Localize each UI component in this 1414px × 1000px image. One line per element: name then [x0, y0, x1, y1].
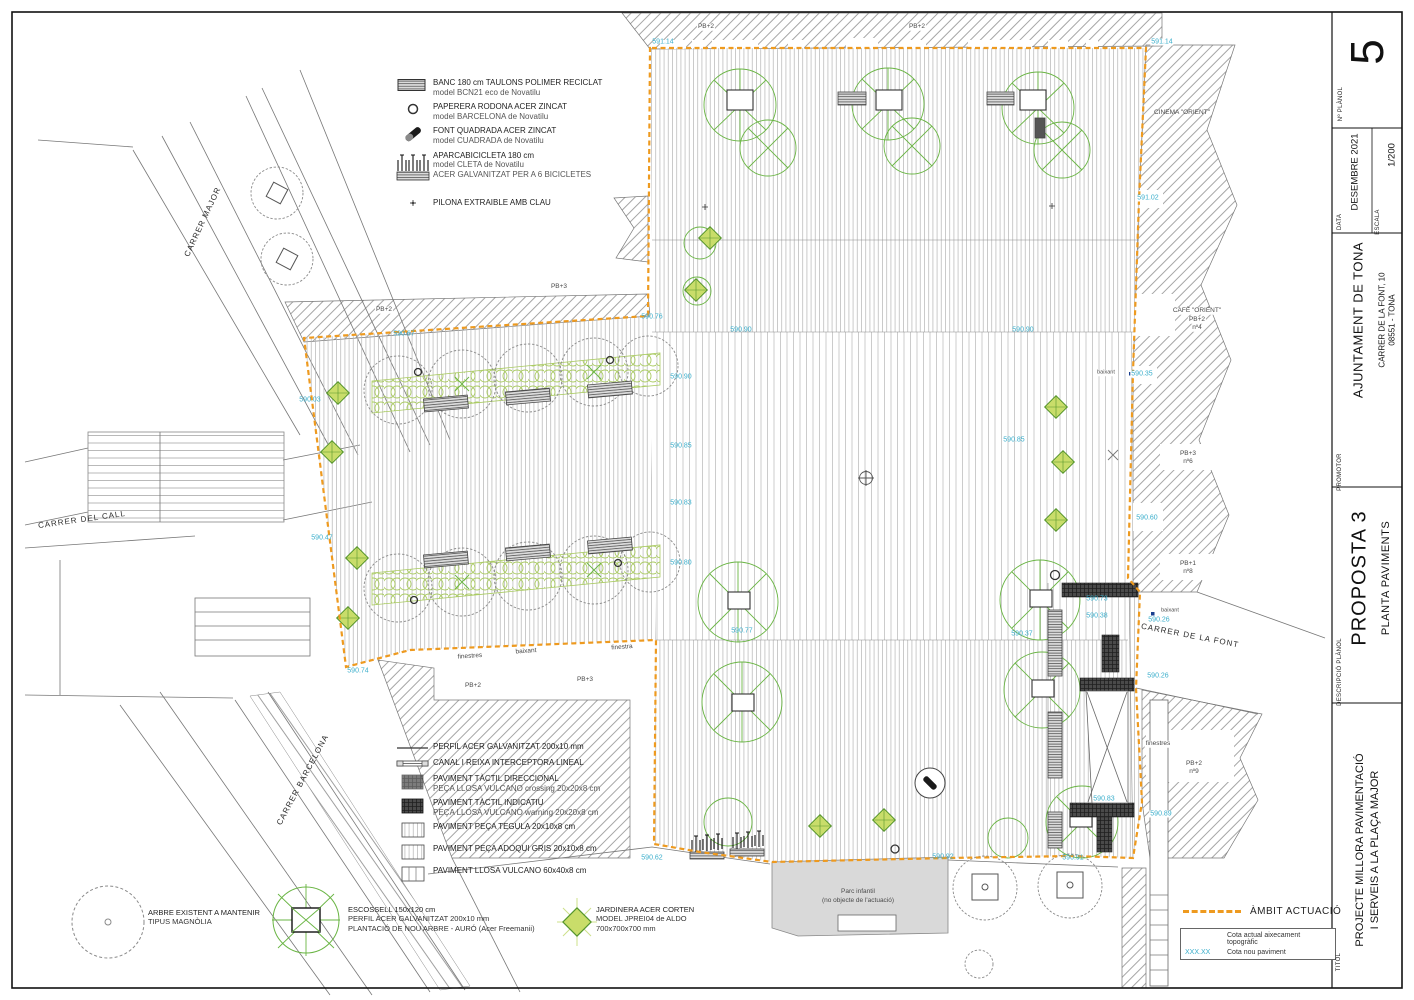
elevation-value: 590.90	[1012, 327, 1033, 334]
legend-item-banc: BANC 180 cm TAULONS POLIMER RECICLAT mod…	[393, 78, 633, 97]
promotor-value: AJUNTAMENT DE TONA	[1351, 242, 1366, 398]
elevation-value: 590.62	[641, 855, 662, 862]
ambit-label: ÀMBIT ACTUACIÓ	[1250, 906, 1341, 917]
elevation-value: 590.92	[932, 854, 953, 861]
legend-item-llosa: PAVIMENT LLOSA VULCANO 60x40x8 cm	[393, 866, 643, 883]
elevation-value: 590.60	[1135, 515, 1158, 522]
titol-label: TITOL	[1336, 953, 1342, 971]
elevation-value: 590.80	[670, 560, 691, 567]
legend-item-font: FONT QUADRADA ACER ZINCAT model CUADRADA…	[393, 126, 633, 145]
elevation-labels: 591.14591.14591.02590.90590.90590.90590.…	[0, 0, 1414, 1000]
legend-item-paperera: PAPERERA RODONA ACER ZINCAT model BARCEL…	[393, 102, 633, 121]
elevation-value: 590.47	[311, 535, 332, 542]
escala-value: 1/200	[1387, 143, 1398, 167]
legend-escossell-text: ESCOSSELL 150x120 cm PERFIL ACER GALVANI…	[348, 905, 535, 933]
titol-line2: I SERVEIS A LA PLAÇA MAJOR	[1368, 753, 1383, 946]
legend-mobiliari: BANC 180 cm TAULONS POLIMER RECICLAT mod…	[393, 78, 633, 213]
escala-label: ESCALA	[1375, 209, 1381, 234]
elevation-value: 590.91	[1062, 855, 1083, 862]
elevation-value: 591.02	[1136, 195, 1159, 202]
elevation-value: 590.85	[670, 443, 691, 450]
elevation-value: 590.89	[1149, 811, 1172, 818]
escossell-icon	[266, 882, 346, 962]
cota-nou-label: Cota nou paviment	[1227, 949, 1331, 956]
legend-escossell-icon	[266, 882, 346, 962]
sheet-number: 5	[1340, 39, 1394, 65]
promotor-address-line2: 08551 - TONA	[1388, 272, 1398, 367]
titol-line1: PROJECTE MILLORA PAVIMENTACIÓ	[1353, 753, 1368, 946]
paperera-icon	[393, 102, 433, 116]
elevation-value: 590.77	[731, 628, 752, 635]
elevation-value: 590.67	[393, 331, 414, 338]
perfil-icon	[393, 742, 433, 753]
elevation-value: 590.03	[299, 397, 320, 404]
cota-actual-label: Cota actual aixecament topogràfic	[1227, 932, 1331, 946]
legend-item-pilona: PILONA EXTRAIBLE AMB CLAU	[393, 198, 633, 208]
promotor-label: PROMOTOR	[1337, 453, 1343, 491]
drawing-sheet: CARRER MAJORCARRER DEL CALLCARRER BARCEL…	[0, 0, 1414, 1000]
elevation-value: 590.35	[1130, 371, 1153, 378]
elevation-value: 590.73	[1086, 596, 1107, 603]
banc-icon	[393, 78, 433, 93]
elevation-value: 590.83	[670, 500, 691, 507]
elevation-value: 590.37	[1011, 631, 1032, 638]
cota-nou-value: XXX.XX	[1185, 949, 1227, 956]
elevation-value: 590.38	[1086, 613, 1107, 620]
canal-icon	[393, 758, 433, 769]
elevation-value: 590.76	[641, 314, 662, 321]
ambit-dash-icon	[1183, 910, 1241, 913]
llosa-icon	[393, 866, 433, 883]
descripcio-value-1: PROPOSTA 3	[1349, 510, 1372, 645]
promotor-address: CARRER DE LA FONT, 10 08551 - TONA	[1378, 272, 1399, 367]
tegula-icon	[393, 822, 433, 839]
legend-item-perfil: PERFIL ACER GALVANITZAT 200x10 mm	[393, 742, 643, 753]
elevation-value: 590.90	[670, 374, 691, 381]
legend-item-aparcabicicleta: APARCABICICLETA 180 cm model CLETA de No…	[393, 151, 633, 185]
adoqui-icon	[393, 844, 433, 861]
legend-item-canal: CANAL I REIXA INTERCEPTORA LINEAL	[393, 758, 643, 769]
sheet-number-label: Nº PLÀNOL	[1338, 87, 1344, 122]
elevation-value: 590.26	[1147, 617, 1170, 624]
legend-item-tactil-indicatiu: PAVIMENT TÀCTIL INDICATIU PEÇA LLOSA VUL…	[393, 798, 643, 817]
elevation-value: 590.74	[347, 668, 368, 675]
elevation-value: 590.90	[730, 327, 751, 334]
titol-value: PROJECTE MILLORA PAVIMENTACIÓ I SERVEIS …	[1353, 753, 1383, 946]
legend-line: BANC 180 cm TAULONS POLIMER RECICLAT	[433, 78, 602, 88]
legend-item-adoqui: PAVIMENT PEÇA ADOQUI GRIS 20x10x8 cm	[393, 844, 643, 861]
descripcio-label: DESCRIPCIÓ PLÀNOL	[1337, 638, 1343, 706]
legend-paviments: PERFIL ACER GALVANITZAT 200x10 mm CANAL …	[393, 742, 643, 888]
legend-item-tactil-direccional: PAVIMENT TÀCTIL DIRECCIONAL PEÇA LLOSA V…	[393, 774, 643, 793]
promotor-address-line1: CARRER DE LA FONT, 10	[1378, 272, 1388, 367]
aparcabicicleta-icon	[393, 151, 433, 185]
elevation-value: 591.14	[652, 39, 673, 46]
legend-item-tegula: PAVIMENT PEÇA TEGULA 20x10x8 cm	[393, 822, 643, 839]
magnolia-icon	[66, 880, 150, 964]
jardinera-icon	[552, 896, 602, 948]
legend-jardinera-icon	[552, 896, 602, 948]
tactil-direccional-icon	[393, 774, 433, 791]
elevation-value: 590.26	[1146, 673, 1169, 680]
elevation-value: 590.83	[1093, 796, 1114, 803]
data-label: DATA	[1337, 214, 1343, 230]
descripcio-value-2: PLANTA PAVIMENTS	[1380, 521, 1392, 635]
legend-arbre-text: ARBRE EXISTENT A MANTENIR TIPUS MAGNÒLIA	[148, 908, 260, 927]
legend-jardinera-text: JARDINERA ACER CORTEN MODEL JPREI04 de A…	[596, 905, 694, 933]
tactil-indicatiu-icon	[393, 798, 433, 815]
font-icon	[393, 126, 433, 142]
cota-legend-box: Cota actual aixecament topogràfic XXX.XX…	[1180, 928, 1336, 960]
elevation-value: 591.14	[1150, 39, 1173, 46]
legend-arbre-icon	[66, 880, 150, 964]
pilona-icon	[393, 198, 433, 208]
elevation-value: 590.85	[1003, 437, 1024, 444]
data-value: DESEMBRE 2021	[1350, 133, 1361, 210]
